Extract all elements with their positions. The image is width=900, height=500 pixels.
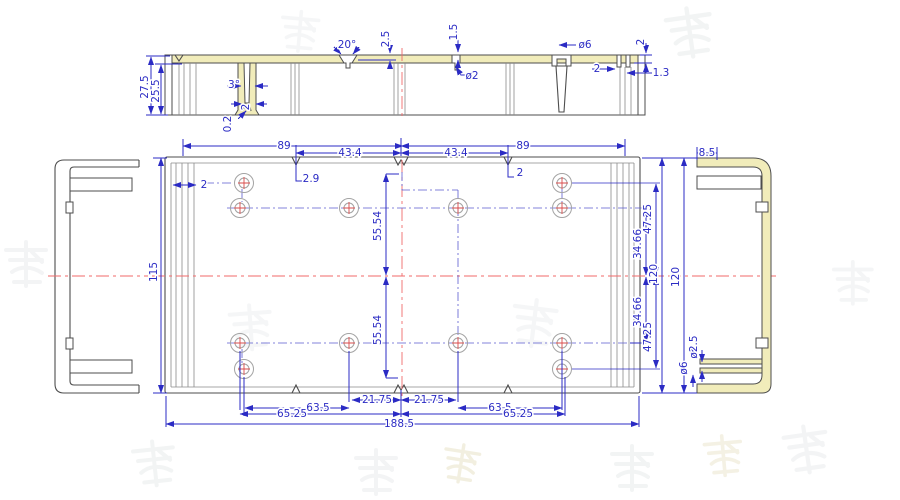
left-profile-clip-bottom: [66, 338, 73, 349]
dimension-label-plan_view: 55.54: [372, 211, 384, 241]
right-profile-wall: [697, 158, 771, 393]
dimension-label-section_view: 1.5: [448, 24, 460, 41]
dimension-label-section_view: 2.5: [380, 31, 392, 48]
right-profile-fin-top: [700, 359, 762, 364]
dimension-label-plan_view: 89: [277, 140, 290, 152]
boss-d6-taper: [556, 66, 567, 112]
watermark-character: [782, 424, 830, 476]
dimension-label-right_profile_view: 8.5: [699, 147, 716, 159]
cad-drawing: 27.525.53°20.220°2.51.5ø2ø6221.38943.443…: [0, 0, 900, 500]
dimension-label-section_view: 20°: [338, 39, 357, 51]
left-profile-view: [55, 160, 139, 393]
dimension-label-section_view: 2: [240, 104, 252, 111]
dimension-label-plan_view: 47.25: [642, 322, 654, 352]
dimension-label-plan_view: 89: [516, 140, 529, 152]
right-profile-plate: [697, 176, 761, 189]
watermark-character: [704, 434, 743, 477]
dimension-label-plan_view: 2: [201, 179, 208, 191]
dimension-label-plan_view: 21.75: [362, 394, 392, 406]
dimension-label-plan_view: 47.25: [642, 204, 654, 234]
dimension-label-right_profile_view: ø2.5: [688, 335, 700, 358]
plan-side-grooves: [171, 163, 634, 387]
dimension-label-plan_view: 55.54: [372, 315, 384, 345]
dimension-label-section_view: 3°: [228, 79, 240, 91]
dimension-label-plan_view: 2.9: [303, 173, 320, 185]
right-profile-clip-top: [756, 202, 768, 212]
dimension-label-section_view: 0.2: [222, 116, 234, 133]
right-profile-fin-bottom: [700, 368, 762, 373]
watermark-character: [280, 10, 319, 53]
dimension-label-section_view: 2: [594, 63, 601, 75]
cad-drawing-page: 27.525.53°20.220°2.51.5ø2ø6221.38943.443…: [0, 0, 900, 500]
watermark-character: [612, 446, 652, 490]
watermark-character: [834, 262, 872, 304]
dimension-label-section_view: ø2: [465, 70, 478, 82]
dimension-label-plan_view: 65.25: [503, 408, 533, 420]
watermark-character: [132, 439, 176, 487]
dimension-label-plan_view: 43.4: [444, 147, 468, 159]
right-profile-clip-bottom: [756, 338, 768, 348]
mounting-hole: [235, 174, 254, 193]
dimension-label-plan_view: 115: [148, 262, 160, 282]
dimension-label-plan_view: 120: [648, 264, 660, 284]
dimension-label-plan_view: 2: [517, 167, 524, 179]
watermark-character: [510, 298, 557, 349]
dimension-label-plan_view: 188.5: [384, 418, 414, 430]
dimension-label-section_view: 2: [635, 39, 647, 46]
dimension-label-plan_view: 63.5: [306, 402, 329, 414]
hole-connectors: [205, 172, 660, 369]
dimension-label-plan_view: 65.25: [277, 408, 307, 420]
watermark-character: [6, 242, 46, 286]
dimension-label-plan_view: 43.4: [338, 147, 362, 159]
dimension-label-plan_view: 21.75: [414, 394, 444, 406]
watermark-character: [441, 442, 480, 484]
watermark-layer: [6, 5, 872, 494]
dimension-label-section_view: ø6: [578, 39, 591, 51]
dimension-label-right_profile_view: ø6: [678, 361, 690, 374]
left-profile-plate-bottom: [70, 360, 132, 373]
dimension-label-plan_view: 120: [670, 267, 682, 287]
left-profile-clip-top: [66, 202, 73, 213]
mounting-hole: [235, 360, 254, 379]
watermark-character: [356, 450, 396, 494]
dimension-label-section_view: 1.3: [653, 67, 670, 79]
left-profile-plate-top: [70, 178, 132, 191]
watermark-character: [665, 5, 715, 59]
watermark-character: [229, 304, 272, 351]
dimension-label-section_view: 25.5: [150, 79, 162, 102]
right-profile-view: [697, 158, 771, 393]
